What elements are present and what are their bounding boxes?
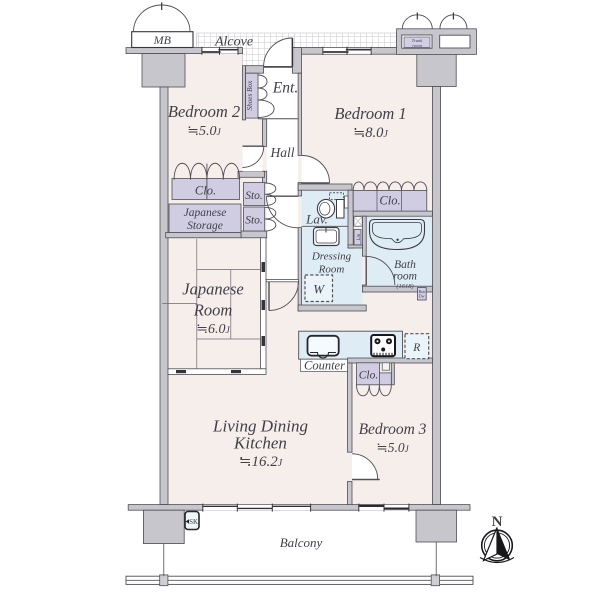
svg-text:Bath: Bath [394, 259, 416, 271]
svg-text:W: W [313, 282, 325, 297]
svg-text:Lin: Lin [357, 233, 362, 241]
svg-text:Dw: Dw [419, 295, 425, 299]
svg-text:≒5.0J: ≒5.0J [187, 124, 221, 139]
svg-text:R: R [412, 342, 420, 354]
svg-text:≒6.0J: ≒6.0J [196, 322, 230, 337]
svg-text:Dressing: Dressing [311, 251, 352, 263]
svg-text:Room: Room [193, 301, 233, 320]
svg-text:≒16.2J: ≒16.2J [239, 454, 283, 470]
svg-text:Alcove: Alcove [214, 35, 253, 50]
svg-text:Bedroom 1: Bedroom 1 [334, 104, 406, 123]
svg-text:Bedroom 2: Bedroom 2 [168, 102, 240, 121]
svg-text:Sto.: Sto. [245, 215, 263, 227]
svg-text:Ent.: Ent. [272, 80, 298, 97]
svg-text:(1618): (1618) [396, 283, 413, 290]
svg-text:Storage: Storage [187, 220, 223, 232]
svg-text:≒8.0J: ≒8.0J [353, 125, 388, 141]
svg-text:Japanese: Japanese [184, 207, 227, 219]
svg-text:Bun: Bun [419, 290, 425, 294]
svg-text:Kitchen: Kitchen [233, 434, 287, 453]
svg-text:Room: Room [318, 264, 345, 276]
svg-text:Lav.: Lav. [305, 212, 328, 227]
svg-text:Japanese: Japanese [182, 280, 243, 299]
svg-text:Counter: Counter [304, 359, 345, 373]
svg-text:N: N [492, 514, 503, 530]
svg-text:Clo.: Clo. [359, 370, 379, 382]
svg-text:Clo.: Clo. [379, 194, 400, 208]
svg-text:Bedroom 3: Bedroom 3 [359, 421, 427, 438]
svg-text:Hall: Hall [269, 145, 294, 160]
svg-text:SK: SK [189, 518, 198, 526]
svg-text:Balcony: Balcony [280, 535, 323, 550]
svg-text:Clo.: Clo. [195, 184, 216, 198]
svg-text:Sto.: Sto. [245, 190, 263, 202]
svg-text:Shoes Box: Shoes Box [246, 80, 254, 111]
svg-text:room: room [393, 271, 417, 283]
svg-text:room: room [412, 43, 422, 48]
svg-text:MB: MB [153, 33, 172, 47]
